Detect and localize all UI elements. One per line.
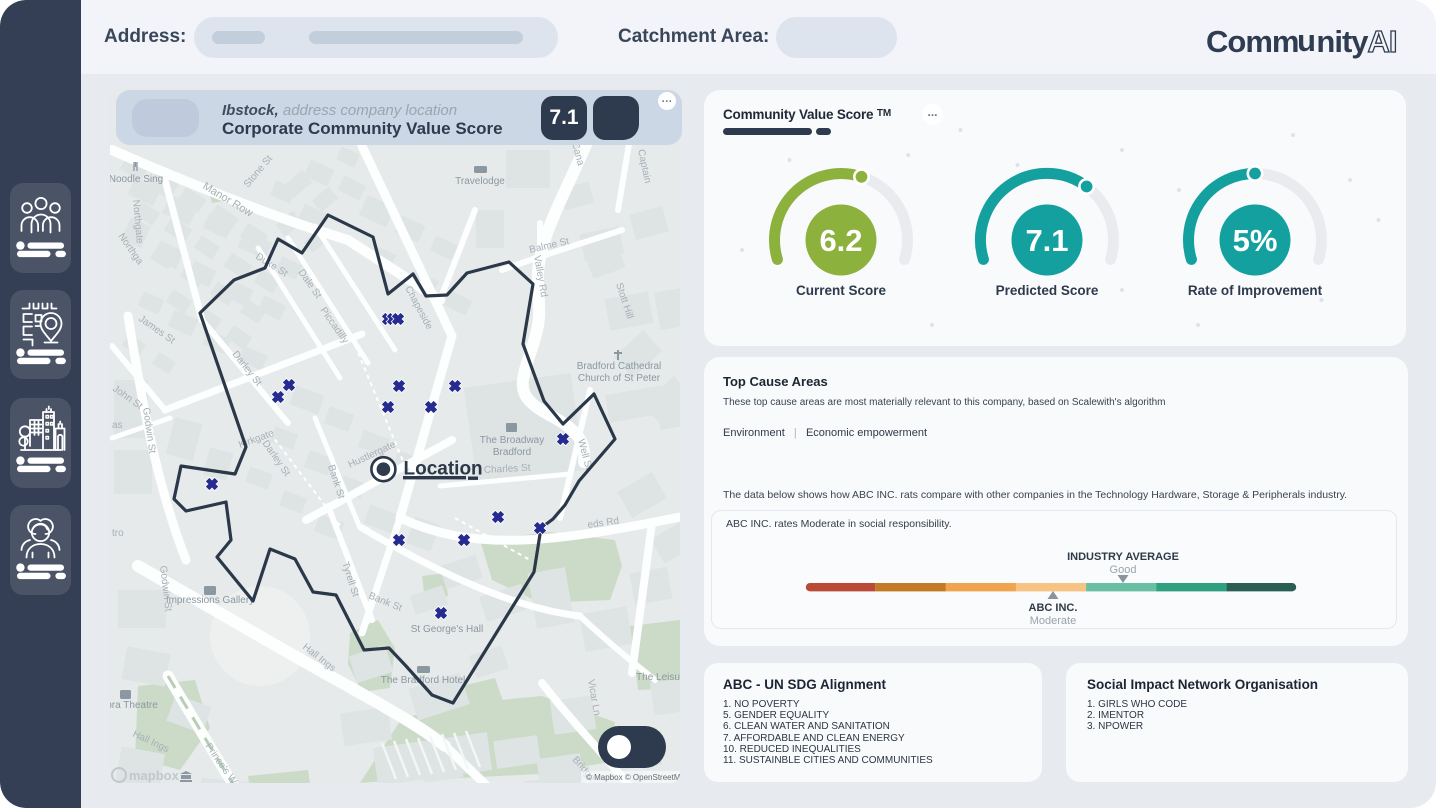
svg-text:Noodle Sing: Noodle Sing	[110, 174, 163, 185]
svg-text:The Leisu: The Leisu	[636, 672, 680, 683]
svg-text:as: as	[112, 420, 123, 431]
svg-text:Church of St Peter: Church of St Peter	[578, 373, 661, 384]
svg-text:Impressions Gallery: Impressions Gallery	[166, 595, 254, 606]
svg-text:Predicted Score: Predicted Score	[996, 283, 1099, 298]
svg-text:tro: tro	[112, 528, 124, 539]
svg-text:mapbox: mapbox	[129, 768, 180, 783]
svg-text:6.2: 6.2	[819, 223, 862, 258]
svg-text:Rate of Improvement: Rate of Improvement	[1188, 283, 1323, 298]
svg-text:7.1: 7.1	[1025, 223, 1068, 258]
svg-text:Bradford Cathedral: Bradford Cathedral	[577, 361, 662, 372]
svg-text:Travelodge: Travelodge	[455, 176, 505, 187]
svg-text:5%: 5%	[1233, 223, 1278, 258]
svg-text:© Mapbox © OpenStreetMa: © Mapbox © OpenStreetMa	[586, 773, 680, 782]
svg-text:bra Theatre: bra Theatre	[110, 700, 158, 711]
svg-text:St George's Hall: St George's Hall	[411, 624, 484, 635]
svg-text:Bradford: Bradford	[493, 447, 531, 458]
svg-text:The Broadway: The Broadway	[480, 435, 544, 446]
svg-text:Current Score: Current Score	[796, 283, 887, 298]
